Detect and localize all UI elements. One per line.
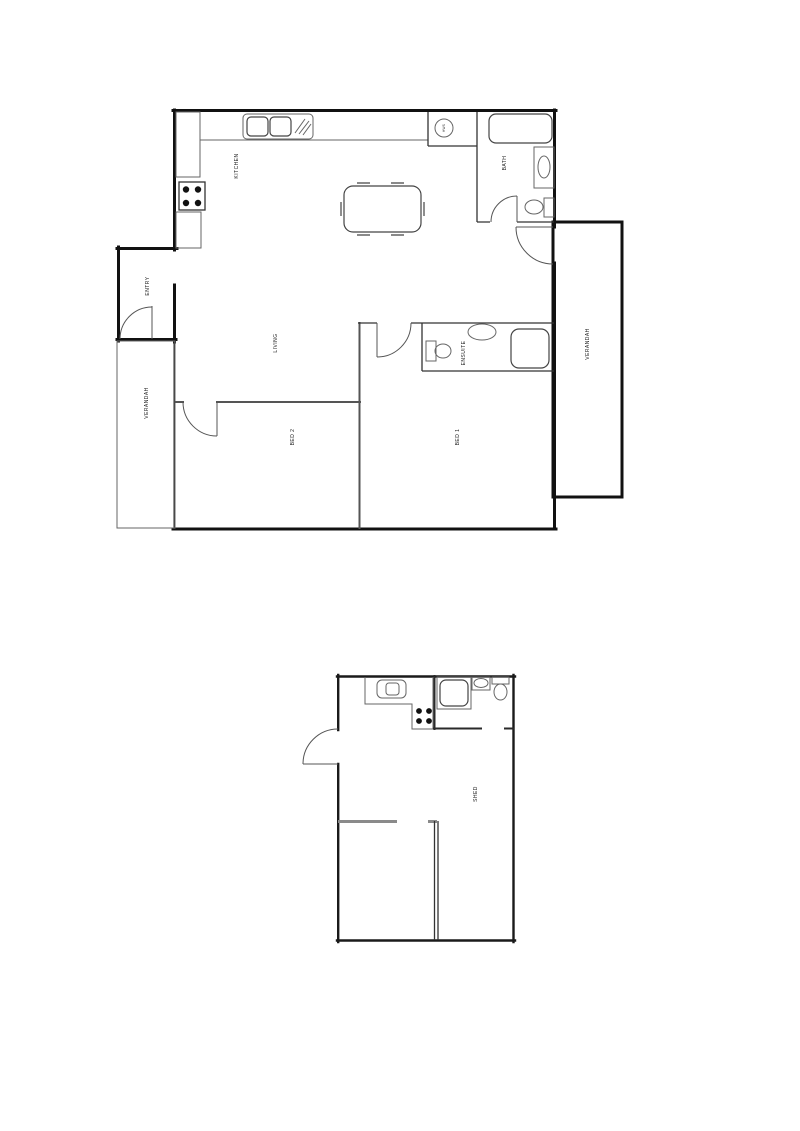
living-label: LIVING bbox=[273, 333, 279, 352]
kitchen-counter-lower bbox=[176, 212, 201, 248]
kitchen-sink bbox=[243, 114, 313, 139]
hot-water-label: HWS bbox=[442, 124, 446, 132]
bathroom: BATH bbox=[477, 112, 554, 222]
sink-bowl-right bbox=[270, 117, 291, 136]
main-outer-walls bbox=[173, 110, 556, 529]
verandah-left-outline bbox=[117, 341, 175, 528]
ensuite-toilet-bowl bbox=[435, 344, 451, 358]
sink-unit-outline bbox=[243, 114, 313, 139]
shed-toilet-cistern bbox=[492, 677, 509, 684]
shed-plan: SHED bbox=[303, 675, 515, 942]
shed-inner-room-right-wall bbox=[435, 821, 439, 940]
shed-stove-burner bbox=[426, 718, 432, 724]
bed1-door-arc bbox=[377, 323, 411, 357]
shed-laundry-tub-bowl bbox=[440, 680, 468, 706]
living-area: LIVING bbox=[273, 183, 424, 353]
dining-table bbox=[344, 186, 421, 232]
shed-label: SHED bbox=[473, 786, 479, 802]
shed-toilet-bowl bbox=[494, 684, 507, 700]
sink-bowl-left bbox=[247, 117, 268, 136]
shed-stove-burner bbox=[416, 718, 422, 724]
kitchen-stove bbox=[179, 182, 205, 210]
bed2-label: BED 2 bbox=[290, 429, 296, 446]
bedroom-walls: BED 2 BED 1 bbox=[176, 323, 554, 528]
stove-burner bbox=[183, 186, 189, 192]
main-house-plan: ENTRY VERANDAH VERANDAH bbox=[117, 110, 622, 529]
verandah-left: VERANDAH bbox=[117, 341, 175, 528]
entry-label: ENTRY bbox=[145, 276, 151, 295]
hot-water-closet: HWS bbox=[428, 112, 477, 146]
ensuite-shower bbox=[511, 329, 549, 368]
ensuite: ENSUITE bbox=[422, 323, 554, 371]
bath-toilet-cistern bbox=[544, 198, 554, 217]
bath-vanity bbox=[534, 147, 554, 188]
shed-stove bbox=[416, 708, 432, 724]
kitchen-counter-left bbox=[176, 112, 200, 177]
verandah-right: VERANDAH bbox=[516, 222, 622, 497]
bath-door-arc bbox=[491, 196, 517, 222]
stove-outline bbox=[179, 182, 205, 210]
shed-door-arc bbox=[303, 729, 338, 764]
bed1-label: BED 1 bbox=[455, 429, 461, 446]
bath-vanity-basin bbox=[538, 156, 550, 178]
shed-kitchenette bbox=[365, 677, 433, 729]
kitchen-area: KITCHEN bbox=[176, 112, 428, 248]
ensuite-walls bbox=[422, 323, 554, 371]
stove-burner bbox=[183, 200, 189, 206]
bathtub bbox=[489, 114, 552, 143]
ensuite-basin bbox=[468, 324, 496, 340]
verandah-left-label: VERANDAH bbox=[144, 387, 150, 418]
stove-burner bbox=[195, 186, 201, 192]
shed-outer-walls bbox=[303, 675, 515, 942]
kitchen-label: KITCHEN bbox=[234, 153, 240, 178]
shed-appliance-inner bbox=[386, 683, 399, 695]
ensuite-label: ENSUITE bbox=[461, 340, 467, 365]
sink-drainer-lines bbox=[295, 119, 311, 135]
shed-wet-area bbox=[434, 676, 513, 729]
bed2-door-arc bbox=[183, 402, 217, 436]
bath-toilet-bowl bbox=[525, 200, 543, 214]
entry-room: ENTRY bbox=[117, 247, 177, 341]
verandah-right-label: VERANDAH bbox=[585, 328, 591, 359]
living-verandah-door-arc bbox=[516, 227, 553, 264]
shed-basin-bowl bbox=[474, 679, 488, 688]
entry-door-arc bbox=[120, 307, 152, 339]
shed-stove-burner bbox=[426, 708, 432, 714]
dining-chair-marks bbox=[341, 183, 424, 235]
shed-stove-burner bbox=[416, 708, 422, 714]
stove-burner bbox=[195, 200, 201, 206]
floorplan-page: ENTRY VERANDAH VERANDAH bbox=[0, 0, 800, 1131]
shed-inner-room bbox=[338, 821, 438, 940]
bath-label: BATH bbox=[502, 156, 508, 171]
floorplan-drawing: ENTRY VERANDAH VERANDAH bbox=[0, 0, 800, 1131]
